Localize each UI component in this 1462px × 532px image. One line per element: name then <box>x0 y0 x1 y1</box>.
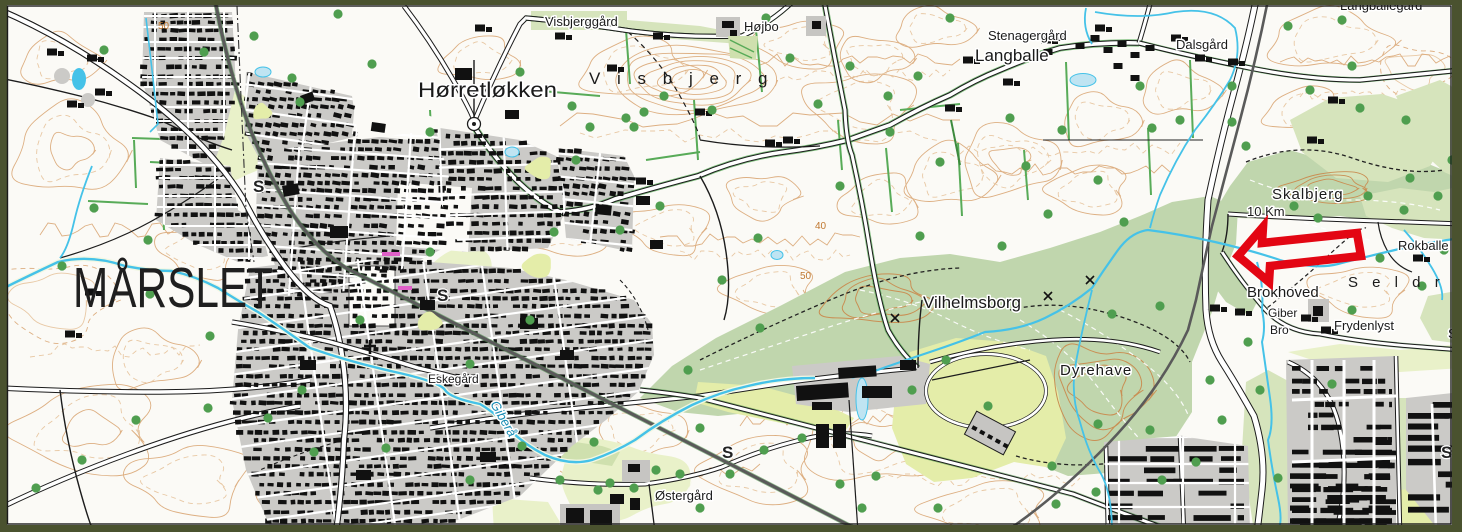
svg-text:Dyrehave: Dyrehave <box>1060 362 1132 379</box>
svg-text:Højbo: Højbo <box>744 19 779 34</box>
svg-text:10 Km: 10 Km <box>1247 204 1285 219</box>
svg-text:50: 50 <box>800 271 812 282</box>
svg-text:Giber: Giber <box>1268 306 1297 320</box>
svg-text:S e l d r: S e l d r <box>1348 274 1445 291</box>
svg-text:Brokhoved: Brokhoved <box>1247 284 1319 301</box>
svg-text:40: 40 <box>815 221 827 232</box>
svg-text:S: S <box>253 177 264 196</box>
svg-text:Dalsgård: Dalsgård <box>1176 37 1228 52</box>
svg-text:Stenagergård: Stenagergård <box>988 28 1067 43</box>
svg-text:Langballe: Langballe <box>975 46 1049 65</box>
svg-text:Bro: Bro <box>1270 323 1289 337</box>
svg-text:50: 50 <box>158 21 170 32</box>
svg-text:S: S <box>722 443 733 462</box>
svg-text:S: S <box>437 286 448 305</box>
svg-text:V i s b j e r g: V i s b j e r g <box>589 69 773 88</box>
svg-text:Visbjerggård: Visbjerggård <box>545 14 618 29</box>
svg-text:Eskegård: Eskegård <box>428 372 479 386</box>
svg-text:Hørretløkken: Hørretløkken <box>418 79 557 102</box>
svg-text:Skalbjerg: Skalbjerg <box>1272 186 1344 203</box>
svg-text:Rokballe: Rokballe <box>1398 238 1449 253</box>
svg-text:Østergård: Østergård <box>655 488 713 503</box>
svg-text:Frydenlyst: Frydenlyst <box>1334 318 1394 333</box>
svg-text:MÅRSLET: MÅRSLET <box>73 256 273 320</box>
svg-text:Vilhelmsborg: Vilhelmsborg <box>923 293 1021 312</box>
